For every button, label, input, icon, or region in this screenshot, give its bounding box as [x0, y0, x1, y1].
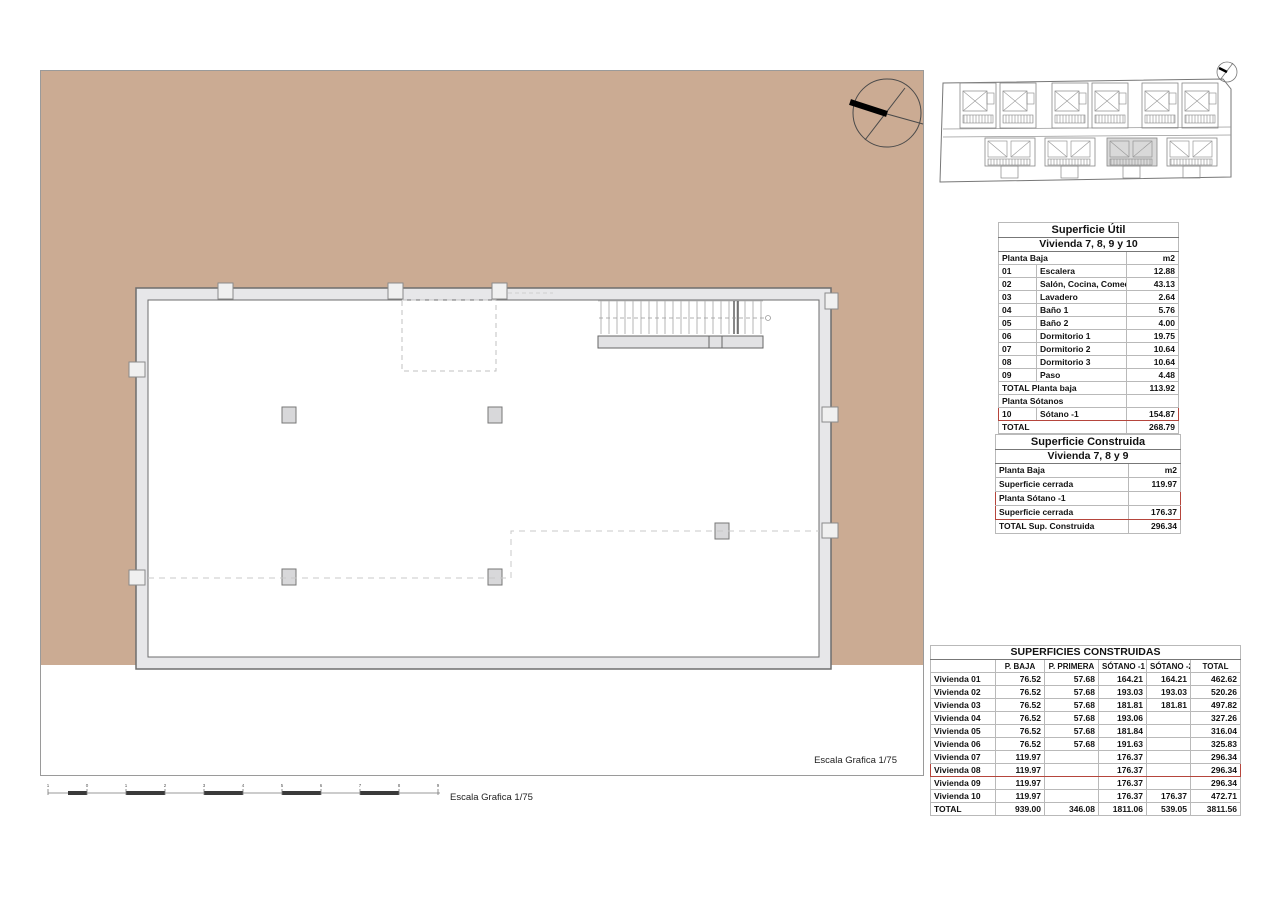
table-cell: 09 — [999, 369, 1037, 382]
table-cell: 520.26 — [1191, 686, 1241, 699]
plan-frame: Escala Grafica 1/75 — [40, 70, 924, 776]
table-cell: 325.83 — [1191, 738, 1241, 751]
table-cell: 57.68 — [1045, 673, 1099, 686]
table-row: Vivienda 0176.5257.68164.21164.21462.62 — [931, 673, 1241, 686]
table-row: Vivienda 0476.5257.68193.06327.26 — [931, 712, 1241, 725]
table-cell: SÓTANO -1 — [1099, 660, 1147, 673]
table-cell: 57.68 — [1045, 712, 1099, 725]
table-cell: Lavadero — [1037, 291, 1127, 304]
table-cell: 02 — [999, 278, 1037, 291]
table-row: Vivienda 08119.97176.37296.34 — [931, 764, 1241, 777]
table-cell — [1147, 738, 1191, 751]
table-cell: 1811.06 — [1099, 803, 1147, 816]
scale-tick-label: 1 — [125, 783, 128, 788]
table-cell — [1045, 790, 1099, 803]
table-cell: TOTAL — [999, 421, 1127, 434]
table-cell: 296.34 — [1191, 751, 1241, 764]
table-cell: 57.68 — [1045, 725, 1099, 738]
table-cell — [1147, 777, 1191, 790]
scale-tick-label: 1 — [47, 783, 50, 788]
table-cell: Planta Baja — [999, 252, 1127, 265]
table-cell: 939.00 — [996, 803, 1045, 816]
table-row: Vivienda 10119.97176.37176.37472.71 — [931, 790, 1241, 803]
table-cell: 181.84 — [1099, 725, 1147, 738]
table-row: 09Paso4.48 — [999, 369, 1179, 382]
table-cell: Salón, Cocina, Comedor — [1037, 278, 1127, 291]
table-cell: m2 — [1127, 252, 1179, 265]
table-cell: 113.92 — [1127, 382, 1179, 395]
table-cell: 327.26 — [1191, 712, 1241, 725]
scale-tick-label: 8 — [398, 783, 401, 788]
table-row: TOTAL268.79 — [999, 421, 1179, 434]
table-cell: SÓTANO -2 — [1147, 660, 1191, 673]
table-cell: 07 — [999, 343, 1037, 356]
table-row: 10Sótano -1154.87 — [999, 408, 1179, 421]
table-row: Planta Sótano -1 — [996, 492, 1181, 506]
table-row: 07Dormitorio 210.64 — [999, 343, 1179, 356]
table-cell — [931, 660, 996, 673]
table-cell: 43.13 — [1127, 278, 1179, 291]
north-compass-icon — [850, 79, 923, 147]
floor-plan-basement — [41, 71, 925, 777]
superficie-util-table: Superficie Útil Vivienda 7, 8, 9 y 10 Pl… — [998, 222, 1179, 434]
table-cell: TOTAL — [931, 803, 996, 816]
table-subtitle: Vivienda 7, 8 y 9 — [996, 450, 1181, 464]
table-row: 05Baño 24.00 — [999, 317, 1179, 330]
table-row: Vivienda 7, 8 y 9 — [996, 450, 1181, 464]
scale-tick-label: 0 — [86, 783, 89, 788]
table-row: TOTAL Planta baja113.92 — [999, 382, 1179, 395]
table-cell: 01 — [999, 265, 1037, 278]
table-cell: 181.81 — [1099, 699, 1147, 712]
table-cell: 296.34 — [1191, 764, 1241, 777]
table-cell: Vivienda 04 — [931, 712, 996, 725]
table-cell — [1147, 712, 1191, 725]
table-cell: 176.37 — [1147, 790, 1191, 803]
table-cell: 181.81 — [1147, 699, 1191, 712]
table-row: Planta Sótanos — [999, 395, 1179, 408]
table-row: Planta Bajam2 — [996, 464, 1181, 478]
table-cell — [1147, 751, 1191, 764]
table-cell: 3811.56 — [1191, 803, 1241, 816]
table-row: Superficie cerrada119.97 — [996, 478, 1181, 492]
table-cell: 119.97 — [996, 764, 1045, 777]
table-cell: 176.37 — [1099, 777, 1147, 790]
table-cell: 193.06 — [1099, 712, 1147, 725]
table-cell: TOTAL Planta baja — [999, 382, 1127, 395]
table-row: Vivienda 0376.5257.68181.81181.81497.82 — [931, 699, 1241, 712]
table-row: 03Lavadero2.64 — [999, 291, 1179, 304]
table-cell: 176.37 — [1129, 506, 1181, 520]
table-cell: TOTAL — [1191, 660, 1241, 673]
table-row: TOTAL Sup. Construida296.34 — [996, 520, 1181, 534]
table-cell: Vivienda 02 — [931, 686, 996, 699]
scale-bar: 10123456789 — [44, 778, 446, 804]
table-cell: 462.62 — [1191, 673, 1241, 686]
table-cell: 57.68 — [1045, 686, 1099, 699]
table-row: Vivienda 0576.5257.68181.84316.04 — [931, 725, 1241, 738]
table-cell: Vivienda 09 — [931, 777, 996, 790]
table-row: 08Dormitorio 310.64 — [999, 356, 1179, 369]
table-cell: Escalera — [1037, 265, 1127, 278]
table-cell: Paso — [1037, 369, 1127, 382]
table-row: Vivienda 09119.97176.37296.34 — [931, 777, 1241, 790]
table-cell: 119.97 — [996, 790, 1045, 803]
table-cell: 12.88 — [1127, 265, 1179, 278]
site-compass-icon — [1217, 62, 1237, 82]
table-cell: 2.64 — [1127, 291, 1179, 304]
table-cell: 472.71 — [1191, 790, 1241, 803]
scale-tick-label: 2 — [164, 783, 167, 788]
table-cell: Superficie cerrada — [996, 478, 1129, 492]
scale-tick-label: 4 — [242, 783, 245, 788]
table-header-row: P. BAJAP. PRIMERASÓTANO -1SÓTANO -2TOTAL — [931, 660, 1241, 673]
table-cell: 176.37 — [1099, 751, 1147, 764]
table-cell: 76.52 — [996, 725, 1045, 738]
site-houses-bottom-row — [985, 138, 1217, 178]
table-cell: Planta Sótanos — [999, 395, 1127, 408]
table-row: 02Salón, Cocina, Comedor43.13 — [999, 278, 1179, 291]
table-cell: 193.03 — [1147, 686, 1191, 699]
scale-tick-label: 7 — [359, 783, 362, 788]
table-cell: 539.05 — [1147, 803, 1191, 816]
table-cell: Vivienda 01 — [931, 673, 996, 686]
table-cell: 57.68 — [1045, 738, 1099, 751]
site-plan — [930, 58, 1250, 196]
table-row: Superficie Útil — [999, 223, 1179, 238]
table-cell: 10.64 — [1127, 356, 1179, 369]
table-cell: Vivienda 06 — [931, 738, 996, 751]
table-cell: 06 — [999, 330, 1037, 343]
table-row: SUPERFICIES CONSTRUIDAS — [931, 646, 1241, 660]
table-cell: 176.37 — [1099, 764, 1147, 777]
table-cell: P. PRIMERA — [1045, 660, 1099, 673]
table-cell: 119.97 — [996, 777, 1045, 790]
scale-tick-label: 5 — [281, 783, 284, 788]
table-cell: 4.48 — [1127, 369, 1179, 382]
table-cell: 268.79 — [1127, 421, 1179, 434]
table-cell: 119.97 — [996, 751, 1045, 764]
table-cell: 57.68 — [1045, 699, 1099, 712]
table-cell: P. BAJA — [996, 660, 1045, 673]
table-cell: 193.03 — [1099, 686, 1147, 699]
table-row: Vivienda 07119.97176.37296.34 — [931, 751, 1241, 764]
table-row: TOTAL939.00346.081811.06539.053811.56 — [931, 803, 1241, 816]
table-cell: 316.04 — [1191, 725, 1241, 738]
table-cell — [1147, 764, 1191, 777]
table-row: Vivienda 7, 8, 9 y 10 — [999, 238, 1179, 252]
table-cell: 4.00 — [1127, 317, 1179, 330]
table-cell: Dormitorio 1 — [1037, 330, 1127, 343]
drawing-sheet: Escala Grafica 1/75 Superficie Útil Vivi… — [0, 0, 1280, 904]
table-cell: Vivienda 07 — [931, 751, 996, 764]
table-cell: Superficie cerrada — [996, 506, 1129, 520]
table-cell: 10.64 — [1127, 343, 1179, 356]
table-cell — [1127, 395, 1179, 408]
table-cell: 76.52 — [996, 699, 1045, 712]
table-cell: Vivienda 05 — [931, 725, 996, 738]
table-cell: Baño 2 — [1037, 317, 1127, 330]
table-cell: 76.52 — [996, 673, 1045, 686]
table-cell: Vivienda 08 — [931, 764, 996, 777]
table-cell: Dormitorio 3 — [1037, 356, 1127, 369]
table-cell: Vivienda 03 — [931, 699, 996, 712]
table-cell — [1045, 777, 1099, 790]
table-cell: Dormitorio 2 — [1037, 343, 1127, 356]
table-cell: 191.63 — [1099, 738, 1147, 751]
table-cell: Baño 1 — [1037, 304, 1127, 317]
table-cell: 04 — [999, 304, 1037, 317]
table-cell: Planta Sótano -1 — [996, 492, 1129, 506]
superficies-construidas-table: SUPERFICIES CONSTRUIDAS P. BAJAP. PRIMER… — [930, 645, 1241, 816]
table-row: Superficie cerrada176.37 — [996, 506, 1181, 520]
scale-label-right: Escala Grafica 1/75 — [814, 755, 897, 766]
table-row: Vivienda 0276.5257.68193.03193.03520.26 — [931, 686, 1241, 699]
table-row: Vivienda 0676.5257.68191.63325.83 — [931, 738, 1241, 751]
scale-tick-label: 9 — [437, 783, 440, 788]
table-cell: m2 — [1129, 464, 1181, 478]
table-cell — [1147, 725, 1191, 738]
table-row: 04Baño 15.76 — [999, 304, 1179, 317]
table-title: Superficie Construida — [996, 435, 1181, 450]
table-cell: 76.52 — [996, 686, 1045, 699]
site-houses-top-row — [960, 83, 1218, 128]
table-cell: Vivienda 10 — [931, 790, 996, 803]
table-cell: 05 — [999, 317, 1037, 330]
scale-tick-label: 3 — [203, 783, 206, 788]
table-subtitle: Vivienda 7, 8, 9 y 10 — [999, 238, 1179, 252]
table-title: Superficie Útil — [999, 223, 1179, 238]
table-cell: Sótano -1 — [1037, 408, 1127, 421]
table-row: Planta Bajam2 — [999, 252, 1179, 265]
scale-label-bottom: Escala Grafica 1/75 — [450, 792, 533, 803]
table-row: 06Dormitorio 119.75 — [999, 330, 1179, 343]
table-cell — [1129, 492, 1181, 506]
table-cell: 164.21 — [1099, 673, 1147, 686]
site-boundary — [940, 79, 1231, 182]
table-cell: 76.52 — [996, 738, 1045, 751]
table-row: 01Escalera12.88 — [999, 265, 1179, 278]
superficie-construida-table: Superficie Construida Vivienda 7, 8 y 9 … — [995, 434, 1181, 534]
table-title: SUPERFICIES CONSTRUIDAS — [931, 646, 1241, 660]
table-cell: 19.75 — [1127, 330, 1179, 343]
table-row: Superficie Construida — [996, 435, 1181, 450]
table-cell: 296.34 — [1129, 520, 1181, 534]
table-cell: TOTAL Sup. Construida — [996, 520, 1129, 534]
table-cell: 176.37 — [1099, 790, 1147, 803]
table-cell: 119.97 — [1129, 478, 1181, 492]
table-cell: 5.76 — [1127, 304, 1179, 317]
table-cell: 10 — [999, 408, 1037, 421]
table-cell — [1045, 751, 1099, 764]
table-cell: 346.08 — [1045, 803, 1099, 816]
table-cell: 76.52 — [996, 712, 1045, 725]
table-cell — [1045, 764, 1099, 777]
table-cell: Planta Baja — [996, 464, 1129, 478]
scale-tick-label: 6 — [320, 783, 323, 788]
table-cell: 154.87 — [1127, 408, 1179, 421]
table-cell: 497.82 — [1191, 699, 1241, 712]
table-cell: 164.21 — [1147, 673, 1191, 686]
table-cell: 03 — [999, 291, 1037, 304]
table-cell: 296.34 — [1191, 777, 1241, 790]
table-cell: 08 — [999, 356, 1037, 369]
